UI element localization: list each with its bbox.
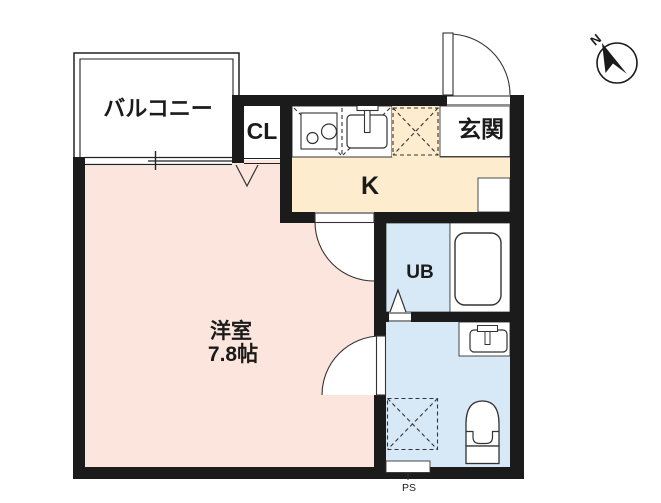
kitchen-floor — [292, 155, 510, 212]
closet-label: CL — [247, 118, 278, 144]
floorplan-drawing: バルコニー CL 玄関 K 洋室 7.8帖 UB PS N — [0, 0, 661, 503]
stove-icon — [301, 113, 337, 149]
unit-bath-label: UB — [406, 262, 433, 283]
pipe-space-label: PS — [402, 482, 416, 494]
compass-north-icon — [597, 43, 637, 83]
balcony-label: バルコニー — [103, 96, 213, 121]
main-room-floor — [85, 160, 292, 467]
entrance-opening — [447, 95, 510, 106]
entrance-step — [478, 178, 510, 212]
washbasin-icon — [459, 322, 510, 356]
main-room-label: 洋室 — [210, 319, 252, 343]
kitchen-label: K — [361, 172, 379, 200]
entrance-label: 玄関 — [458, 116, 504, 142]
main-room-size-label: 7.8帖 — [208, 343, 258, 366]
bathtub-icon — [455, 233, 501, 305]
floorplan-canvas: バルコニー CL 玄関 K 洋室 7.8帖 UB PS N — [0, 0, 661, 503]
unit-bath-opening — [389, 312, 411, 322]
entrance-door-swing — [443, 33, 510, 95]
toilet-icon — [466, 401, 499, 464]
compass-n-label: N — [587, 31, 604, 49]
